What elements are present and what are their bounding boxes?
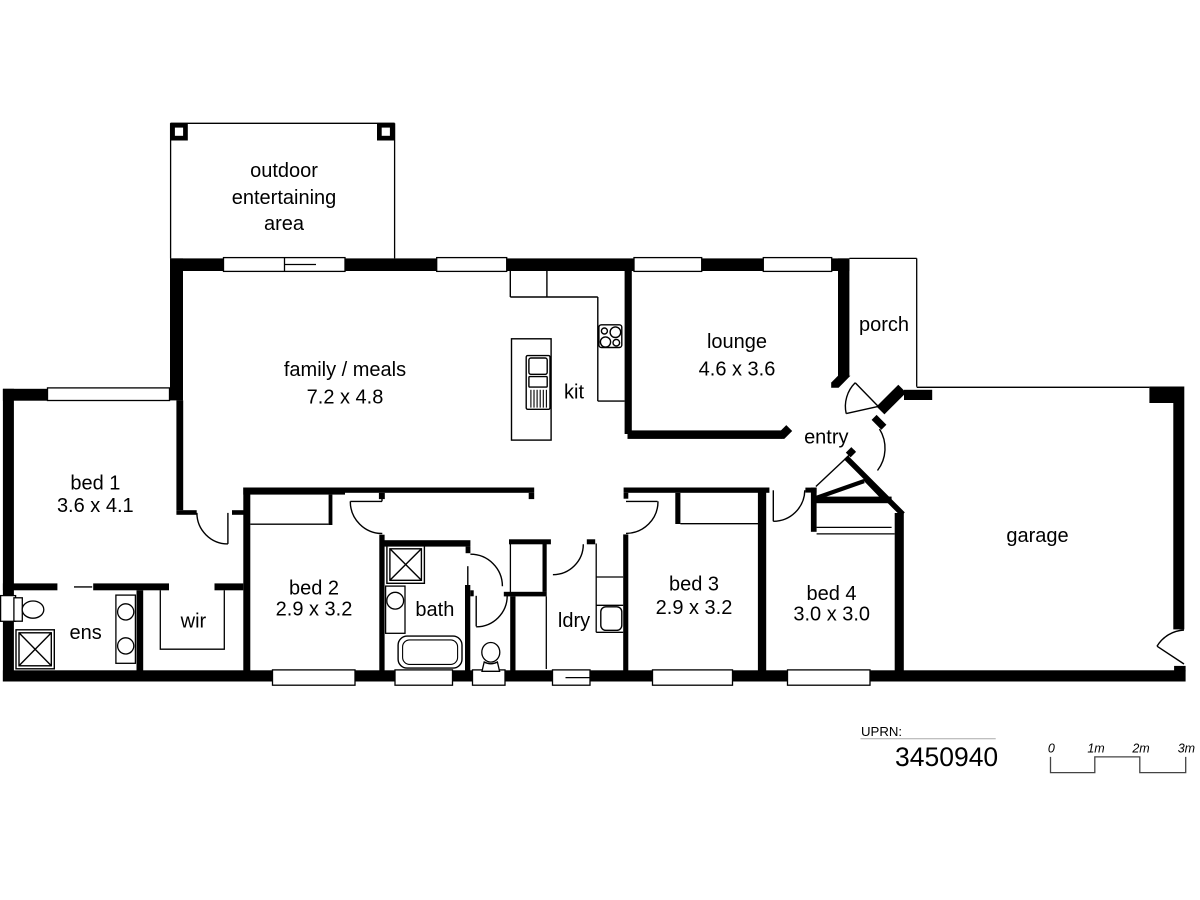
svg-text:family / meals: family / meals [284, 359, 406, 381]
svg-text:kit: kit [564, 382, 584, 404]
svg-text:entertaining: entertaining [232, 187, 337, 209]
svg-text:bath: bath [415, 599, 454, 621]
svg-text:lounge: lounge [707, 331, 767, 353]
svg-text:entry: entry [804, 426, 848, 448]
svg-text:7.2 x 4.8: 7.2 x 4.8 [307, 387, 384, 409]
svg-text:wir: wir [180, 611, 207, 633]
svg-text:bed 4: bed 4 [806, 583, 856, 605]
svg-text:3.0 x 3.0: 3.0 x 3.0 [793, 603, 870, 625]
svg-text:2.9 x 3.2: 2.9 x 3.2 [656, 597, 733, 619]
svg-text:3.6 x 4.1: 3.6 x 4.1 [57, 495, 134, 517]
svg-text:UPRN:: UPRN: [861, 724, 902, 739]
svg-text:2.9 x 3.2: 2.9 x 3.2 [276, 598, 353, 620]
svg-text:0: 0 [1048, 741, 1055, 755]
svg-text:4.6 x 3.6: 4.6 x 3.6 [699, 359, 776, 381]
svg-text:2m: 2m [1131, 741, 1149, 755]
svg-text:bed 2: bed 2 [289, 578, 339, 600]
svg-text:ens: ens [69, 622, 101, 644]
svg-text:garage: garage [1006, 525, 1068, 547]
svg-text:ldry: ldry [558, 610, 590, 632]
svg-text:outdoor: outdoor [250, 160, 318, 182]
svg-text:bed 1: bed 1 [70, 473, 120, 495]
svg-text:3450940: 3450940 [895, 742, 998, 772]
svg-text:porch: porch [859, 314, 909, 336]
svg-text:area: area [264, 213, 305, 235]
svg-text:bed 3: bed 3 [669, 574, 719, 596]
svg-text:3m: 3m [1178, 741, 1195, 755]
svg-text:1m: 1m [1087, 741, 1104, 755]
